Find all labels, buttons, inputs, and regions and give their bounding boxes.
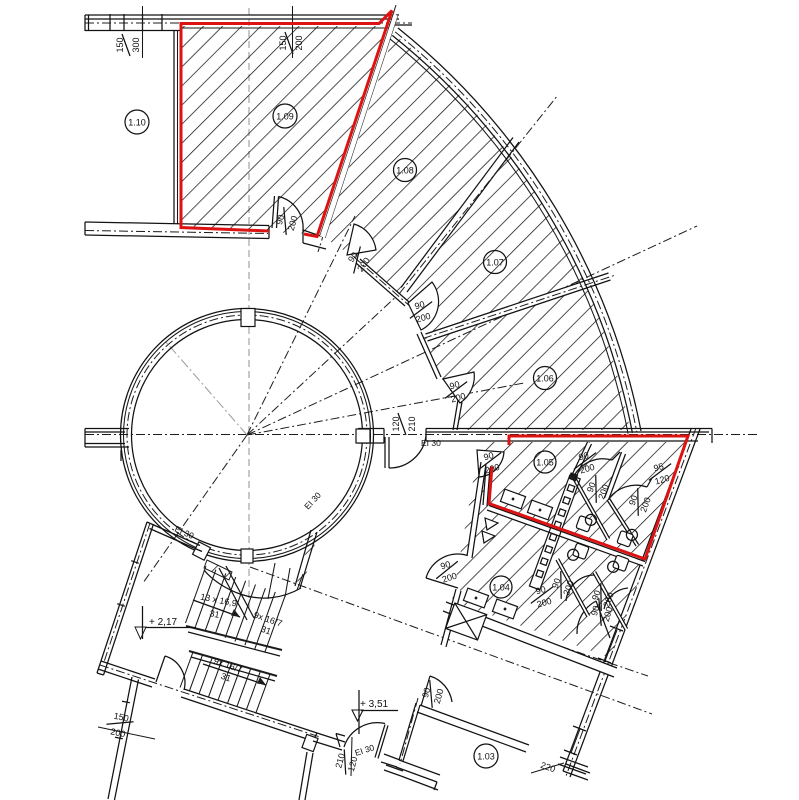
- svg-text:1.04: 1.04: [492, 583, 510, 593]
- svg-text:1.10: 1.10: [128, 118, 146, 128]
- svg-text:31: 31: [209, 608, 221, 620]
- svg-text:1.09: 1.09: [276, 112, 294, 122]
- svg-text:+ 2,17: + 2,17: [149, 617, 178, 628]
- svg-text:1.03: 1.03: [477, 752, 495, 762]
- svg-text:+ 3,51: + 3,51: [360, 699, 389, 710]
- svg-text:1.08: 1.08: [396, 166, 414, 176]
- svg-text:EI 30: EI 30: [421, 438, 441, 448]
- svg-text:1.05: 1.05: [536, 458, 554, 468]
- svg-text:210: 210: [407, 416, 417, 431]
- svg-text:1.06: 1.06: [536, 374, 554, 384]
- svg-text:300: 300: [131, 37, 141, 52]
- svg-text:200: 200: [294, 35, 304, 50]
- svg-text:1.07: 1.07: [486, 258, 504, 268]
